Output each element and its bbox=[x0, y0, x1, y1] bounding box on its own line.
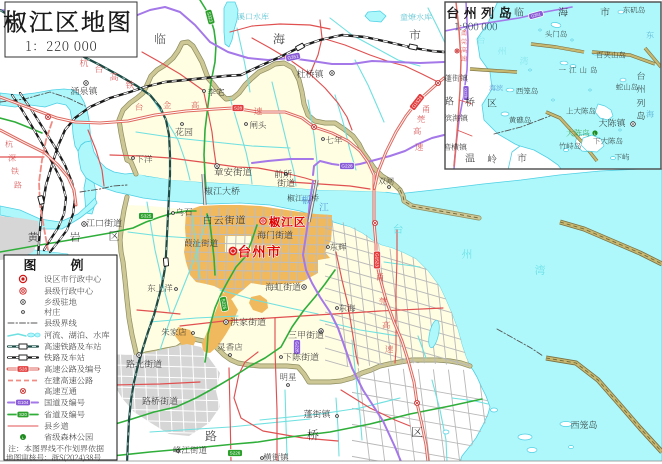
svg-text:S28: S28 bbox=[234, 106, 243, 111]
svg-text:G228: G228 bbox=[464, 88, 469, 99]
svg-text:S325: S325 bbox=[141, 214, 152, 219]
svg-text:S28: S28 bbox=[19, 367, 27, 372]
svg-text:G1523: G1523 bbox=[374, 253, 379, 267]
svg-text:G228: G228 bbox=[294, 341, 299, 353]
svg-text:L: L bbox=[594, 132, 596, 136]
svg-text:G228: G228 bbox=[341, 164, 353, 169]
svg-text:S226: S226 bbox=[230, 451, 241, 456]
svg-text:S20: S20 bbox=[19, 412, 27, 417]
svg-text:G104: G104 bbox=[18, 400, 29, 405]
